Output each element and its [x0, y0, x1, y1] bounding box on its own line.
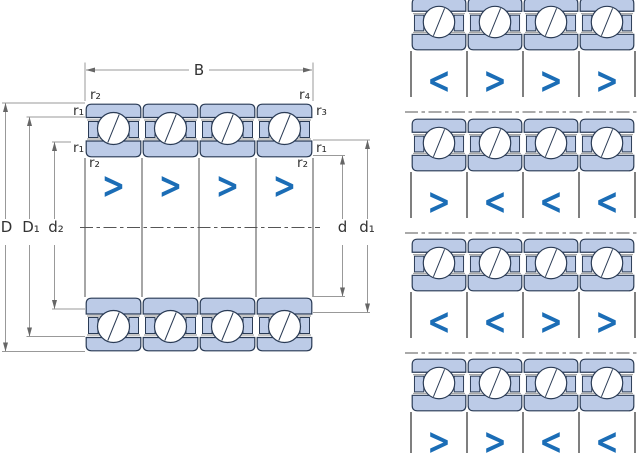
- bearing-cross-section: [412, 359, 466, 411]
- main-diagram: > > > > B D: [1, 61, 375, 352]
- label-r2-top-left: r₂: [90, 87, 101, 103]
- bearing-cross-section: [468, 239, 522, 291]
- bearing-cross-section: [580, 359, 634, 411]
- dimension-B: B: [85, 61, 313, 101]
- chevron-right-icon: >: [483, 59, 506, 102]
- label-d2: d₂: [48, 218, 64, 236]
- chevron-left-icon: <: [539, 420, 562, 453]
- chevron-left-icon: <: [483, 180, 506, 223]
- chevron-left-icon: <: [539, 180, 562, 223]
- arrangement-row-4: > > < <: [411, 359, 635, 453]
- bearing-cross-section: [580, 119, 634, 171]
- label-D: D: [1, 218, 13, 236]
- bearing-cross-section: [468, 119, 522, 171]
- chevron-right-icon: >: [595, 300, 618, 343]
- bearing-bottom-3: [200, 298, 255, 351]
- label-r2-bottom-left: r₂: [89, 155, 100, 171]
- bearing-bottom-1: [86, 298, 141, 351]
- bearing-cross-section: [524, 119, 578, 171]
- arrangement-grid: < > > > > < < <: [405, 0, 638, 453]
- bearing-cross-section: [468, 359, 522, 411]
- bearing-top-2: [143, 104, 198, 157]
- bearing-cross-section: [412, 119, 466, 171]
- bearing-bottom-2: [143, 298, 198, 351]
- bearing-cross-section: [524, 359, 578, 411]
- bearing-cross-section: [580, 239, 634, 291]
- label-r4-top-right: r₄: [299, 87, 310, 103]
- chevron-right-icon: >: [483, 420, 506, 453]
- bearing-top-4: [257, 104, 312, 157]
- bearing-cross-section: [580, 0, 634, 50]
- bearing-top-1: [86, 104, 141, 157]
- bearing-cross-section: [468, 0, 522, 50]
- bearing-cross-section: [524, 0, 578, 50]
- chevron-right-icon: >: [595, 59, 618, 102]
- label-r1-right-lower: r₁: [316, 140, 327, 156]
- arrangement-row-2: > < < <: [405, 119, 638, 233]
- dimension-d: d: [313, 156, 347, 297]
- label-r1-left-lower: r₁: [73, 140, 84, 156]
- chevron-left-icon: <: [427, 300, 450, 343]
- chevron-right-icon: >: [427, 180, 450, 223]
- label-r2-bottom-right: r₂: [297, 155, 308, 171]
- chevron-left-icon: <: [595, 420, 618, 453]
- dimension-d2: d₂: [48, 142, 85, 309]
- chevron-left-icon: <: [595, 180, 618, 223]
- arrangement-row-3: < < > >: [405, 239, 638, 353]
- chevron-right-icon: >: [539, 59, 562, 102]
- chevron-right-icon: >: [539, 300, 562, 343]
- arrangement-row-1: < > > >: [405, 0, 638, 112]
- bearing-cross-section: [412, 239, 466, 291]
- bearing-cross-section: [524, 239, 578, 291]
- bearing-figure: > > > > B D: [0, 0, 638, 453]
- label-r1-left-upper: r₁: [73, 103, 84, 119]
- chevron-right-icon: >: [216, 164, 239, 207]
- label-d1: d₁: [359, 218, 375, 236]
- label-D1: D₁: [22, 218, 40, 236]
- chevron-right-icon: >: [273, 164, 296, 207]
- chevron-right-icon: >: [427, 420, 450, 453]
- chevron-right-icon: >: [102, 164, 125, 207]
- label-r3-right-upper: r₃: [316, 103, 327, 119]
- bearing-top-3: [200, 104, 255, 157]
- bearing-bottom-4: [257, 298, 312, 351]
- figure-canvas: > > > > B D: [0, 0, 638, 453]
- label-B: B: [194, 61, 204, 79]
- chevron-left-icon: <: [483, 300, 506, 343]
- chevron-left-icon: <: [427, 59, 450, 102]
- bearing-cross-section: [412, 0, 466, 50]
- label-d: d: [338, 218, 348, 236]
- chevron-right-icon: >: [159, 164, 182, 207]
